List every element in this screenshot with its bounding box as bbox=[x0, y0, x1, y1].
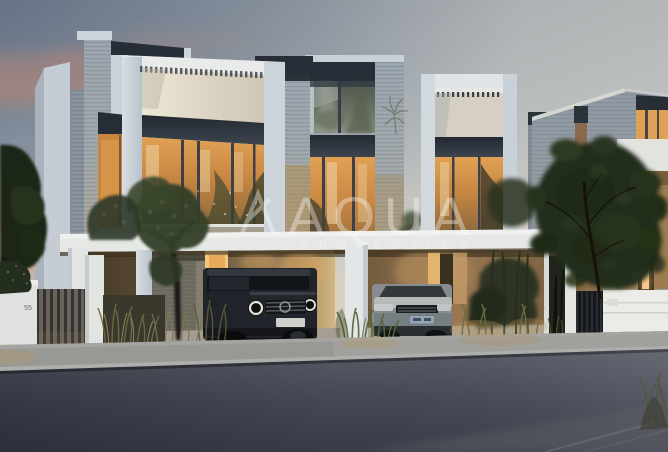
svg-text:AQUA: AQUA bbox=[288, 187, 477, 247]
svg-text:55: 55 bbox=[24, 305, 32, 312]
svg-text:PROPERTIES: PROPERTIES bbox=[301, 240, 477, 252]
